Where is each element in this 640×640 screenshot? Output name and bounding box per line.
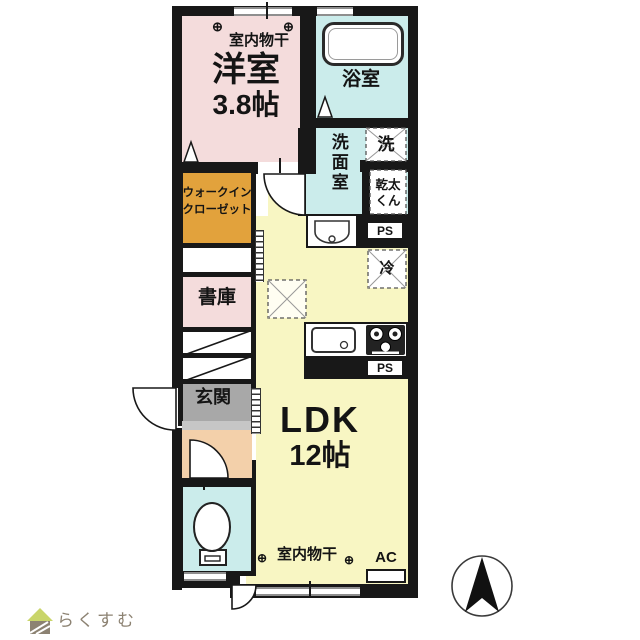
dryer-label-line2: くん <box>375 194 400 208</box>
logo-house-icon <box>27 608 53 634</box>
plan-symbols-layer <box>0 0 640 640</box>
compass-north-icon <box>452 556 512 616</box>
cabinet-diagonal-lower <box>184 357 250 381</box>
stove-icon <box>366 325 405 355</box>
wic-label-line2: クローゼット <box>183 204 252 216</box>
washer-label: 洗 <box>366 128 406 161</box>
door-marker-western <box>184 142 198 162</box>
laundry-hook-bottom-left: ⊕ <box>257 552 267 565</box>
entrance-door-arc <box>133 388 176 430</box>
western-room-label: 洋室 <box>198 52 294 89</box>
fridge-label: 冷 <box>368 250 406 288</box>
library-label: 書庫 <box>184 288 250 309</box>
laundry-hook-top-left: ⊕ <box>212 20 223 34</box>
floor-plan: PS PS <box>0 0 640 640</box>
ac-label: AC <box>370 550 402 567</box>
logo-text: らくすむ <box>57 612 137 631</box>
cabinet-diagonal-upper <box>184 331 250 355</box>
laundry-hook-top-right: ⊕ <box>283 20 294 34</box>
indoor-drying-top-label: 室内物干 <box>224 33 294 50</box>
hall-door-arc <box>190 440 228 478</box>
indoor-drying-bottom-label: 室内物干 <box>270 547 344 564</box>
ldk-door-arc <box>264 174 305 215</box>
laundry-hook-bottom-right: ⊕ <box>344 554 354 567</box>
western-room-size: 3.8帖 <box>196 90 296 121</box>
ldk-hatch-box <box>268 280 306 318</box>
door-marker-bath <box>318 97 332 117</box>
dryer-label-line1: 乾太 <box>375 178 400 192</box>
toilet-icon <box>194 503 230 565</box>
ldk-size-label: 12帖 <box>272 441 368 473</box>
wic-label: ウォークイン クローゼット <box>180 185 254 218</box>
dryer-label: 乾太 くん <box>370 177 406 210</box>
bathroom-label: 浴室 <box>330 70 392 91</box>
wic-label-line1: ウォークイン <box>183 187 252 199</box>
ldk-label: LDK <box>270 400 370 440</box>
washroom-label: 洗面室 <box>328 118 347 208</box>
sink-drain-icon <box>341 342 348 349</box>
entrance-label: 玄関 <box>184 388 242 408</box>
terrace-door-arc <box>232 585 256 609</box>
vanity-bowl-icon <box>315 221 349 243</box>
